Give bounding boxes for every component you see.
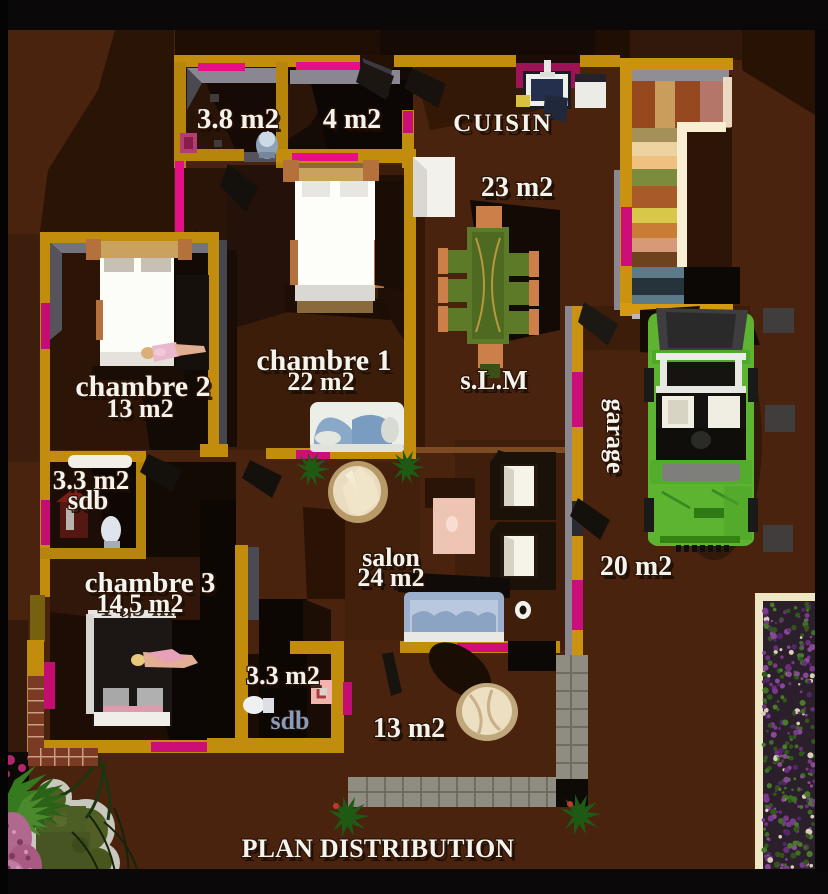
svg-text:CUISIN: CUISIN: [453, 110, 553, 137]
svg-text:sdb: sdb: [270, 706, 309, 735]
svg-text:24 m2: 24 m2: [357, 563, 424, 592]
svg-text:PLAN DISTRIBUTION: PLAN DISTRIBUTION: [242, 834, 515, 863]
svg-text:23 m2: 23 m2: [481, 172, 553, 203]
svg-text:garage: garage: [601, 398, 630, 473]
svg-text:3.3 m2: 3.3 m2: [246, 661, 320, 690]
svg-text:4 m2: 4 m2: [323, 104, 381, 135]
svg-text:3.8 m2: 3.8 m2: [197, 103, 279, 135]
svg-text:14,5 m2: 14,5 m2: [97, 589, 184, 618]
svg-text:s.L.M: s.L.M: [460, 365, 528, 395]
svg-text:sdb: sdb: [68, 485, 109, 515]
svg-text:13 m2: 13 m2: [373, 713, 445, 744]
svg-text:22 m2: 22 m2: [287, 367, 354, 396]
svg-text:13 m2: 13 m2: [106, 394, 173, 423]
svg-text:20 m2: 20 m2: [600, 551, 672, 582]
